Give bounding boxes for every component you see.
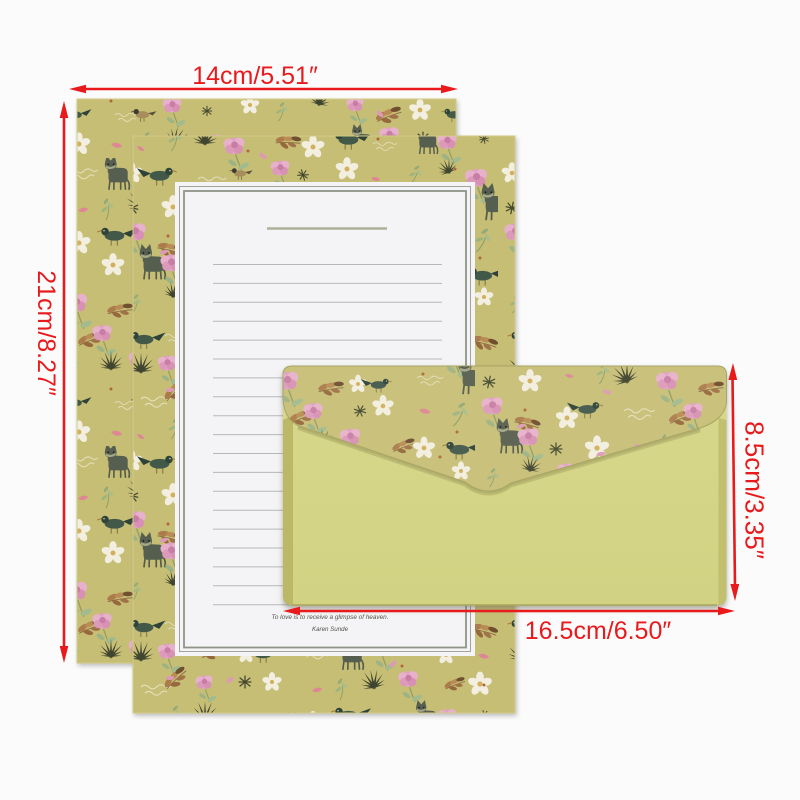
svg-text:21cm/8.27″: 21cm/8.27″ — [32, 270, 60, 396]
svg-text:16.5cm/6.50″: 16.5cm/6.50″ — [525, 617, 672, 645]
svg-text:8.5cm/3.35″: 8.5cm/3.35″ — [740, 421, 770, 559]
svg-text:To love is to receive a glimps: To love is to receive a glimpse of heave… — [272, 614, 389, 621]
svg-text:14cm/5.51″: 14cm/5.51″ — [192, 62, 318, 90]
svg-text:Karen Sunde: Karen Sunde — [312, 626, 349, 633]
